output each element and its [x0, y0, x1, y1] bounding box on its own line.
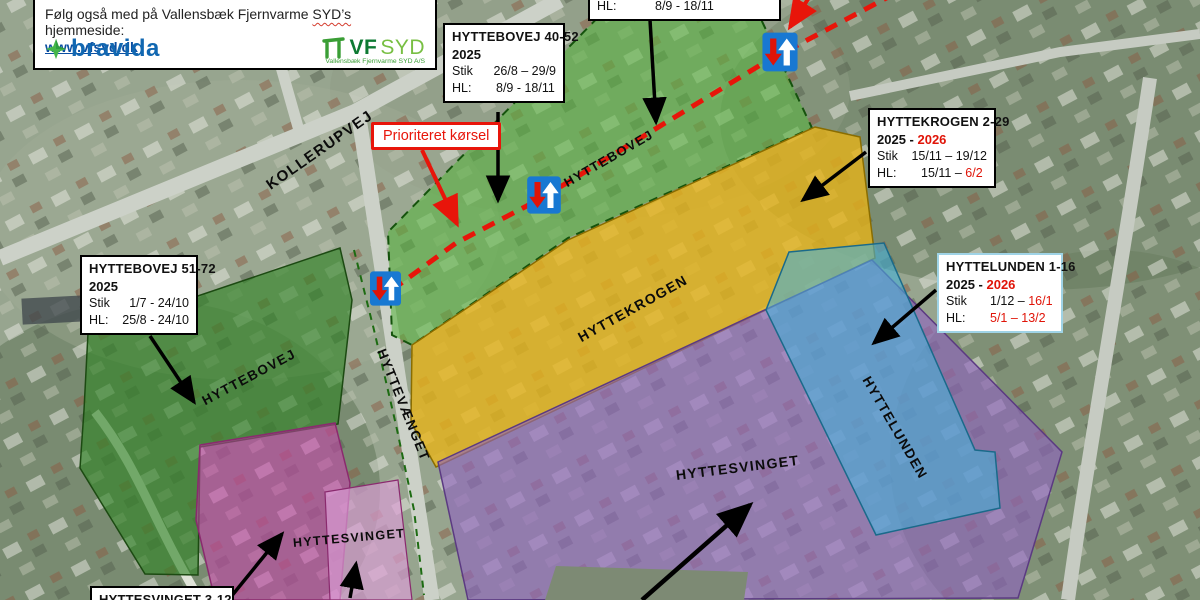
- info-box-hyttelunden-1-16: HYTTELUNDEN 1-16 2025 - 2026 Stik1/12 – …: [937, 253, 1063, 333]
- priority-notice: Prioriteret kørsel: [371, 122, 501, 150]
- info-box-hyttebovej-40-52: HYTTEBOVEJ 40-52 2025 Stik26/8 – 29/9 HL…: [443, 23, 565, 103]
- vfsyd-pipe-icon: [322, 36, 346, 60]
- priority-road-sign-icon: [762, 33, 797, 72]
- vfsyd-wordmark-syd: SYD: [380, 36, 425, 60]
- info-box-hyttekrogen-2-29: HYTTEKROGEN 2-29 2025 - 2026 Stik15/11 –…: [868, 108, 996, 188]
- vfsyd-logo: VF SYD Vallensbæk Fjernvarme SYD A/S: [322, 36, 425, 65]
- bravida-star-icon: [45, 38, 67, 60]
- info-box-hyttebovej-51-72: HYTTEBOVEJ 51-72 2025 Stik1/7 - 24/10 HL…: [80, 255, 198, 335]
- info-box-hyttesvinget-3-12: HYTTESVINGET 3-12: [90, 586, 234, 600]
- vfsyd-subtitle: Vallensbæk Fjernvarme SYD A/S: [322, 58, 425, 65]
- info-box-top-partial: HL:8/9 - 18/11: [588, 0, 781, 21]
- bravida-wordmark: bravida: [71, 35, 160, 63]
- bravida-logo: bravida: [45, 35, 160, 63]
- priority-road-sign-icon: [370, 271, 401, 305]
- vfsyd-wordmark-vf: VF: [349, 36, 377, 60]
- priority-road-sign-icon: [527, 176, 561, 213]
- map-canvas: Følg også med på Vallensbæk Fjernvarme S…: [0, 0, 1200, 600]
- header-box: Følg også med på Vallensbæk Fjernvarme S…: [33, 0, 437, 70]
- header-text: Følg også med på Vallensbæk Fjernvarme S…: [45, 6, 427, 38]
